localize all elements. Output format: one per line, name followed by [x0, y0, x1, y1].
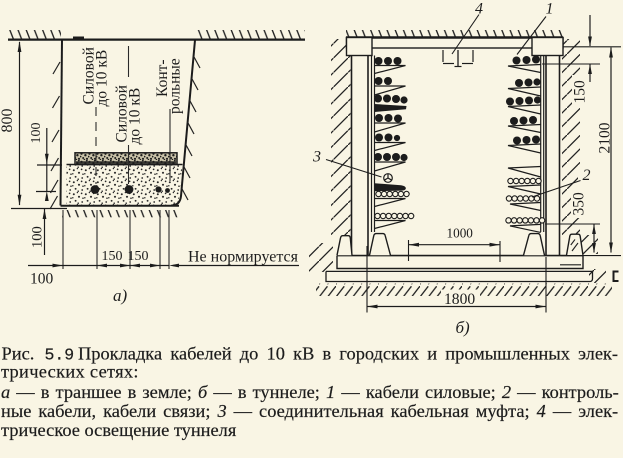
svg-text:1800: 1800 [444, 291, 475, 308]
svg-text:150: 150 [572, 80, 589, 104]
svg-text:ные кабели, кабели связи; 3 —: ные кабели, кабели связи; 3 — соединител… [1, 401, 618, 421]
svg-text:Рис.: Рис. [2, 344, 35, 364]
svg-text:2: 2 [583, 167, 591, 184]
svg-text:1000: 1000 [447, 226, 474, 241]
svg-text:до 10 кВ: до 10 кВ [94, 50, 111, 107]
svg-text:а): а) [113, 286, 128, 305]
svg-text:3: 3 [312, 149, 321, 166]
svg-text:150: 150 [128, 249, 149, 264]
svg-text:б): б) [456, 318, 471, 337]
svg-text:до 10 кВ: до 10 кВ [127, 88, 144, 145]
svg-text:350: 350 [571, 192, 588, 216]
svg-text:150: 150 [102, 249, 123, 264]
svg-text:100: 100 [30, 271, 54, 288]
svg-text:а — в траншее в земле; б — в т: а — в траншее в земле; б — в туннеле; 1 … [1, 382, 619, 402]
svg-text:Прокладка кабелей до 10 кВ в г: Прокладка кабелей до 10 кВ в городских и… [78, 344, 618, 364]
svg-text:800: 800 [0, 109, 16, 133]
svg-text:Не нормируется: Не нормируется [188, 249, 299, 266]
svg-text:рольные: рольные [167, 58, 184, 114]
svg-text:100: 100 [29, 123, 44, 144]
svg-text:2100: 2100 [597, 122, 614, 153]
svg-text:трических сетях:: трических сетях: [1, 362, 139, 382]
svg-text:100: 100 [30, 226, 46, 248]
svg-text:трическое освещение туннеля: трическое освещение туннеля [1, 420, 237, 440]
svg-text:1: 1 [546, 1, 554, 18]
